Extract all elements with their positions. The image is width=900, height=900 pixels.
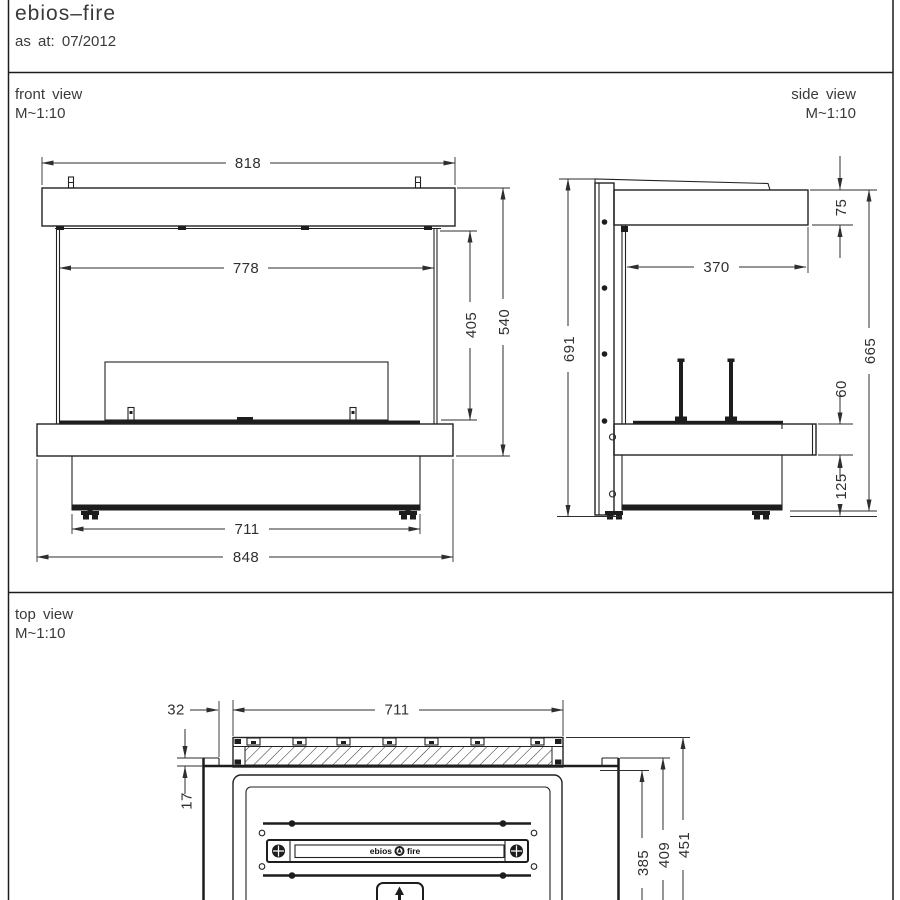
dim-top-depth-outer: 451 xyxy=(566,738,693,900)
dim-label: 32 xyxy=(167,702,185,719)
dim-top-depth-inner: 385 xyxy=(600,771,652,900)
front-firebox-floor xyxy=(60,421,420,424)
dim-label: 818 xyxy=(235,155,261,172)
dim-label: 711 xyxy=(384,702,409,719)
dim-label: 540 xyxy=(496,309,513,335)
front-bench xyxy=(37,424,453,456)
dim-label: 125 xyxy=(833,473,850,499)
front-top-cap xyxy=(42,188,455,226)
top-view-drawing: ebios fire 32 xyxy=(167,700,693,900)
top-burner: ebios fire xyxy=(267,840,528,862)
dim-label: 75 xyxy=(833,199,850,217)
dim-label: 665 xyxy=(862,338,879,364)
burner-logo: ebios fire xyxy=(370,846,421,856)
dim-front-opening-height: 405 xyxy=(440,231,480,420)
top-object: ebios fire xyxy=(204,738,619,900)
front-base-bottom xyxy=(72,505,420,511)
side-glass-posts xyxy=(675,359,737,422)
front-glass-panel xyxy=(105,362,388,420)
dim-front-overall-width: 848 xyxy=(37,459,453,566)
dim-side-base-height: 125 xyxy=(790,457,877,517)
top-glass-hatch xyxy=(245,747,552,766)
dim-label: 451 xyxy=(676,832,693,858)
front-base-sides xyxy=(72,456,420,511)
top-outer-edges xyxy=(204,758,619,900)
dim-front-base-width: 711 xyxy=(72,514,420,538)
burner-logo-right: fire xyxy=(407,846,421,856)
dim-label: 370 xyxy=(703,259,729,276)
side-cap-wedge xyxy=(595,179,770,190)
side-bench xyxy=(614,424,816,455)
dim-side-inner-depth: 370 xyxy=(627,227,808,276)
dim-label: 848 xyxy=(233,549,259,566)
dim-top-side-offset: 32 xyxy=(167,700,233,757)
dim-side-front-height: 665 xyxy=(790,190,879,511)
side-base-bottom xyxy=(622,505,782,511)
dim-side-cap-height: 75 xyxy=(810,156,877,258)
side-foot-right xyxy=(752,511,770,520)
flame-arrow-icon xyxy=(395,887,404,896)
top-body-rim xyxy=(233,775,562,900)
top-glass-clips xyxy=(247,738,544,745)
burner-logo-left: ebios xyxy=(370,846,392,856)
side-base-sides xyxy=(622,455,782,511)
dim-label: 691 xyxy=(561,336,578,362)
dim-label: 385 xyxy=(635,850,652,876)
dim-label: 17 xyxy=(179,792,196,810)
side-top-cap xyxy=(614,190,808,225)
side-object xyxy=(595,179,816,520)
dim-front-opening-width: 778 xyxy=(60,260,435,277)
dim-top-depth-mid: 409 xyxy=(620,758,673,900)
dim-top-glass-length: 711 xyxy=(233,700,563,736)
top-glass-strip xyxy=(233,738,563,768)
dim-label: 405 xyxy=(463,312,480,338)
dim-front-top-width: 818 xyxy=(42,155,455,185)
dim-side-back-height: 691 xyxy=(557,179,622,517)
front-view-drawing: 818 778 405 540 711 xyxy=(37,155,513,566)
technical-drawing: 818 778 405 540 711 xyxy=(0,0,900,900)
top-bottom-port xyxy=(377,883,423,900)
dim-label: 409 xyxy=(656,842,673,868)
front-burner-mark xyxy=(237,417,253,421)
side-back-panel xyxy=(595,183,614,515)
dim-top-glass-offset: 17 xyxy=(177,729,204,810)
front-firebox-walls xyxy=(57,229,438,424)
front-object xyxy=(37,177,455,520)
drawing-sheet: ebios–fire as at: 07/2012 front view M~1… xyxy=(0,0,900,900)
dim-label: 711 xyxy=(234,521,259,538)
dim-label: 60 xyxy=(833,380,850,398)
side-inner-wall xyxy=(622,225,626,424)
side-view-drawing: 75 370 691 665 60 xyxy=(557,156,879,520)
dim-label: 778 xyxy=(233,260,259,277)
dim-side-bench-thickness: 60 xyxy=(818,380,853,478)
